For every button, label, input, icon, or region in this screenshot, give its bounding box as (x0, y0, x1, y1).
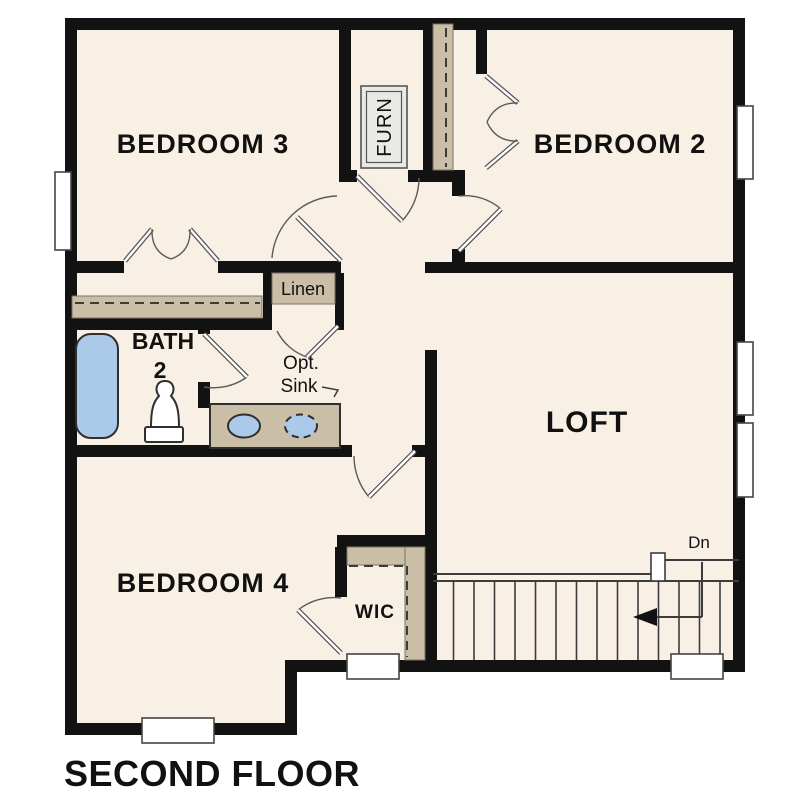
opt-sink-label-line2: Sink (281, 376, 318, 397)
bathtub (76, 334, 118, 438)
optional-sink (285, 415, 317, 438)
wall (425, 350, 437, 660)
furnace-unit: FURN (361, 86, 407, 168)
wall (452, 178, 465, 196)
wall (335, 273, 344, 330)
window (347, 654, 399, 679)
bedroom3-closet-shelf (72, 296, 262, 318)
floor-plan-drawing: FURN (0, 0, 810, 810)
wall (423, 24, 433, 182)
wic-label: WIC (355, 602, 395, 623)
wall (339, 24, 351, 176)
wall (335, 547, 347, 597)
furnace-label: FURN (374, 97, 396, 157)
wall (198, 382, 210, 408)
bedroom2-label: BEDROOM 2 (534, 129, 707, 159)
bedroom3-label: BEDROOM 3 (117, 129, 290, 159)
wall (476, 24, 487, 74)
window (737, 106, 753, 179)
wall (337, 535, 425, 547)
bedroom4-label: BEDROOM 4 (117, 568, 290, 598)
wall (425, 262, 739, 273)
wall (71, 261, 124, 273)
window (737, 342, 753, 415)
linen-label: Linen (281, 279, 325, 299)
sink (228, 415, 260, 438)
bath2-label-line1: BATH (132, 328, 194, 354)
window (55, 172, 71, 250)
wall (339, 170, 357, 182)
toilet-tank (145, 427, 183, 442)
bedroom2-closet-shelf (433, 24, 453, 170)
window (142, 718, 214, 743)
wall (198, 318, 210, 334)
plan-title: SECOND FLOOR (64, 753, 360, 794)
window (737, 423, 753, 497)
window (671, 654, 723, 679)
loft-label: LOFT (546, 406, 628, 439)
opt-sink-label-line1: Opt. (283, 353, 319, 374)
wall (452, 249, 465, 263)
stairs-down-label: Dn (688, 533, 710, 552)
bath2-label-line2: 2 (154, 357, 167, 383)
newel-post (651, 553, 665, 581)
wall (218, 261, 341, 273)
floor-plan: FURN (0, 0, 810, 810)
